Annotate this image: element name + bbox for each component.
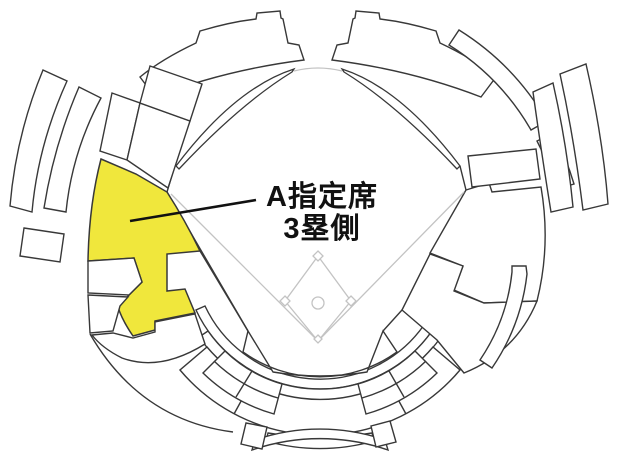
lens-tip-right <box>460 166 466 190</box>
stadium-seating-map: A指定席 3塁側 <box>0 0 640 473</box>
notch-section-white <box>88 258 142 295</box>
terrace-block-right <box>371 421 396 447</box>
outer-bands-left <box>10 70 101 262</box>
outer-bands-right <box>533 64 608 212</box>
outer-band-left-small <box>20 228 64 262</box>
funnel-edge-right-low <box>383 310 402 331</box>
pitchers-mound <box>312 297 324 309</box>
home-plate <box>314 335 322 343</box>
infield-diamond <box>285 256 351 341</box>
second-base <box>313 251 323 261</box>
stadium-map-page: A指定席 3塁側 <box>0 0 640 473</box>
outfield-wall-arc <box>294 68 342 71</box>
right-corner-section <box>468 149 540 187</box>
section-label-line2: 3塁側 <box>283 212 360 245</box>
highlighted-section-group <box>88 159 205 363</box>
section-label-line1: A指定席 <box>266 179 378 213</box>
terrace-block-left <box>241 423 267 449</box>
